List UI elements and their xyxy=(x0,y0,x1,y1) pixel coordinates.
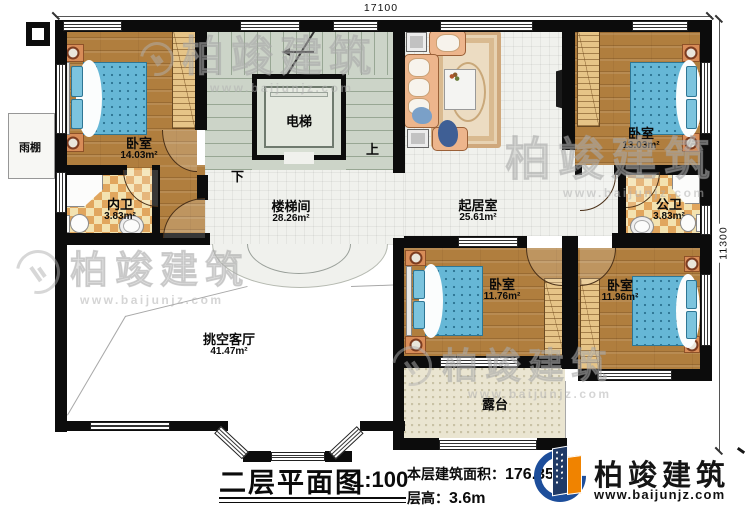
wardrobe xyxy=(577,27,600,127)
wall-segment xyxy=(195,20,207,130)
void-outline xyxy=(351,285,393,287)
wall-segment xyxy=(393,20,405,173)
side-table xyxy=(406,32,427,52)
vestibule-door[interactable] xyxy=(163,198,205,238)
window xyxy=(598,370,672,380)
bed-pillow xyxy=(686,311,697,339)
chimney-block xyxy=(26,22,50,46)
wall-segment xyxy=(612,233,712,248)
void-outline xyxy=(67,316,126,416)
room-label-bedroom-br: 卧室11.96m² xyxy=(602,279,639,304)
lamp-icon xyxy=(409,252,422,265)
stair-down-label: 下 xyxy=(231,166,244,185)
table-flowers xyxy=(448,72,461,83)
floor-height-label: 层高： xyxy=(407,490,449,506)
person-figure xyxy=(438,120,458,147)
window xyxy=(632,21,688,31)
window xyxy=(701,205,711,235)
bedroom-tl-door[interactable] xyxy=(162,130,197,172)
stair-direction-dash xyxy=(290,51,314,53)
window xyxy=(333,21,378,31)
stair-up-label: 上 xyxy=(366,139,379,158)
window xyxy=(214,426,249,459)
window xyxy=(56,172,66,213)
bed-pillow xyxy=(71,66,83,97)
lamp-icon xyxy=(685,136,698,149)
dimension-top-value: 17100 xyxy=(361,2,401,14)
room-label-elevator: 电梯 xyxy=(286,115,312,129)
room-label-terrace: 露台 xyxy=(482,398,508,412)
wall-segment xyxy=(562,236,578,369)
brand-url[interactable]: www.baijunjz.com xyxy=(594,487,725,502)
bed-pillow xyxy=(413,301,425,329)
title-underline xyxy=(219,497,406,499)
bed-headboard xyxy=(406,266,412,336)
elevator-door-gap xyxy=(284,152,314,164)
bed-pillow xyxy=(686,99,697,129)
window xyxy=(701,274,711,346)
window xyxy=(63,21,122,31)
bed-pillow xyxy=(686,280,697,309)
wall-segment xyxy=(562,20,575,150)
wall-segment xyxy=(575,165,582,175)
window xyxy=(701,62,711,134)
bedroom-bm-door[interactable] xyxy=(526,248,562,286)
sofa-cushion xyxy=(408,78,430,97)
window xyxy=(240,21,300,31)
floor-height-value: 3.6m xyxy=(449,490,485,507)
room-label-stair-hall: 楼梯间28.26m² xyxy=(271,200,310,225)
nightstand xyxy=(682,44,700,62)
brand-logo-building-orange xyxy=(567,455,582,495)
dimension-line-top xyxy=(55,16,712,17)
bed-pillow xyxy=(71,99,83,129)
lamp-icon xyxy=(686,258,699,271)
brand-logo-building-blue xyxy=(552,446,568,497)
stair-treads-left xyxy=(205,75,252,170)
room-label-canopy: 雨棚 xyxy=(19,139,41,155)
stair-arrow-head xyxy=(282,48,290,56)
room-label-bedroom-tl: 卧室14.03m² xyxy=(120,137,157,162)
wall-segment xyxy=(393,238,404,450)
wall-segment xyxy=(403,438,439,450)
terrace-edge-line xyxy=(565,381,566,439)
plan-scale: 1:100 xyxy=(352,467,408,493)
wall-segment xyxy=(55,20,712,32)
floor-height-row: 层高：3.6m xyxy=(407,488,485,508)
side-table xyxy=(407,129,429,148)
wall-segment xyxy=(197,175,208,200)
lamp-icon xyxy=(67,136,80,149)
window xyxy=(439,440,537,450)
toilet-bowl xyxy=(70,214,89,233)
nightstand xyxy=(405,250,426,266)
floor-plan-canvas: 卧室14.03m² 内卫3.83m² 电梯 楼梯间28.26m² 上 下 起居室… xyxy=(0,0,750,516)
window xyxy=(458,237,518,247)
bed-pillow xyxy=(413,270,425,299)
floor-area-label: 本层建筑面积： xyxy=(407,466,505,482)
window xyxy=(440,21,533,31)
room-label-public-bath: 公卫3.83m² xyxy=(653,198,685,223)
window xyxy=(440,357,518,367)
nightstand xyxy=(684,256,700,272)
room-label-bedroom-bm: 卧室11.76m² xyxy=(484,278,521,303)
wall-segment xyxy=(618,173,626,236)
dimension-right-value: 11300 xyxy=(718,223,730,262)
bedroom-tr-door[interactable] xyxy=(580,175,616,211)
title-underline xyxy=(219,502,406,503)
wardrobe xyxy=(172,27,196,129)
window xyxy=(56,64,66,134)
room-label-void-living: 挑空客厅41.47m² xyxy=(203,333,255,358)
lamp-icon xyxy=(409,339,422,352)
lamp-icon xyxy=(67,47,80,60)
brand-accent-tick xyxy=(737,447,745,454)
bed-pillow xyxy=(686,66,697,97)
elevator-counterweight xyxy=(270,92,328,97)
nightstand xyxy=(405,336,426,354)
plan-title: 二层平面图 xyxy=(219,461,364,500)
room-label-inner-bath: 内卫3.83m² xyxy=(104,198,136,223)
wardrobe xyxy=(580,278,600,370)
room-label-bedroom-tr: 卧室13.03m² xyxy=(622,127,659,152)
room-label-living: 起居室25.61m² xyxy=(458,199,497,224)
sofa-cushion xyxy=(408,58,430,77)
lamp-icon xyxy=(685,47,698,60)
window xyxy=(271,452,325,461)
person-figure xyxy=(412,107,432,124)
window xyxy=(90,422,170,430)
void-outline xyxy=(125,286,248,317)
armchair-cushion xyxy=(436,34,460,52)
